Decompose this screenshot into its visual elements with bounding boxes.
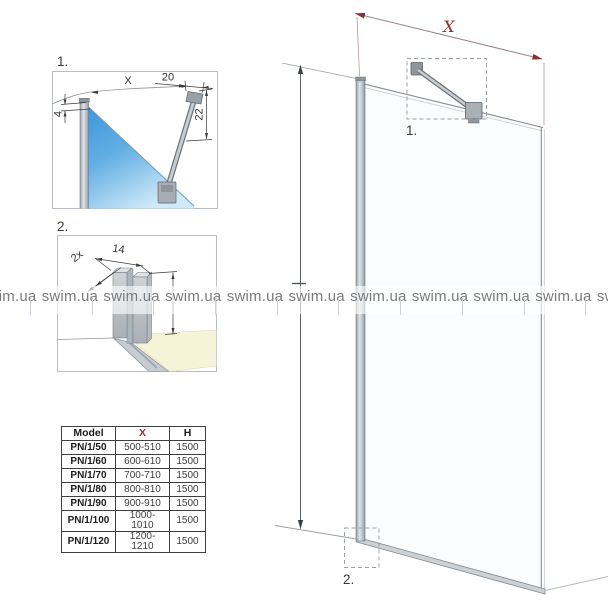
watermark-band: swim.ua swim.ua swim.ua swim.ua swim.ua … [0, 288, 608, 318]
wall-profile [80, 101, 89, 210]
glass-clamp [466, 103, 483, 120]
model-spec-table: Model X H PN/1/50 500-510 1500 PN/1/60 6… [61, 426, 206, 553]
floor-line-right [545, 577, 608, 591]
wall-bracket [186, 92, 203, 105]
detail-1-view: 1. X 20 [52, 54, 218, 210]
watermark-unit: swim.ua [0, 288, 42, 318]
model-cell: PN/1/90 [62, 497, 116, 511]
model-cell: PN/1/70 [62, 469, 116, 483]
header-x: X [116, 427, 170, 441]
watermark-text: swim.ua [103, 288, 159, 305]
h-cell: 1500 [170, 441, 206, 455]
detail-2-label: 2. [57, 219, 68, 234]
watermark-unit: swim.ua [165, 288, 227, 318]
watermark-unit: swim.ua [597, 288, 608, 318]
callout-2-label: 2. [343, 572, 354, 587]
watermark-unit: swim.ua [535, 288, 597, 318]
watermark-divider [338, 298, 339, 315]
callout-1-label: 1. [406, 123, 417, 138]
table-row: PN/1/90 900-910 1500 [62, 497, 206, 511]
watermark-text: swim.ua [165, 288, 221, 305]
watermark-unit: swim.ua [227, 288, 289, 318]
watermark-divider [277, 298, 278, 315]
h-cell: 1500 [170, 469, 206, 483]
watermark-unit: swim.ua [42, 288, 104, 318]
watermark-text: swim.ua [535, 288, 591, 305]
x-cell: 600-610 [116, 455, 170, 469]
h-cell: 1500 [170, 511, 206, 532]
table-row: PN/1/60 600-610 1500 [62, 455, 206, 469]
wall-profile-cap [356, 77, 366, 81]
wall-profile-cap [79, 98, 89, 102]
watermark-text: swim.ua [350, 288, 406, 305]
watermark-text: swim.ua [597, 288, 608, 305]
watermark-divider [585, 298, 586, 315]
x-cell: 800-810 [116, 483, 170, 497]
table-row: PN/1/120 1200-1210 1500 [62, 532, 206, 553]
table-header-row: Model X H [62, 427, 206, 441]
dim-4-label: 4 [53, 111, 65, 117]
table-row: PN/1/50 500-510 1500 [62, 441, 206, 455]
h-cell: 1500 [170, 483, 206, 497]
x-cell: 900-910 [116, 497, 170, 511]
model-cell: PN/1/80 [62, 483, 116, 497]
watermark-unit: swim.ua [350, 288, 412, 318]
table-row: PN/1/100 1000-1010 1500 [62, 511, 206, 532]
model-cell: PN/1/60 [62, 455, 116, 469]
watermark-unit: swim.ua [288, 288, 350, 318]
model-cell: PN/1/120 [62, 532, 116, 553]
h-cell: 1500 [170, 455, 206, 469]
header-model: Model [62, 427, 116, 441]
watermark-text: swim.ua [474, 288, 530, 305]
watermark-text: swim.ua [42, 288, 98, 305]
dim-x-label: X [124, 75, 132, 87]
watermark-unit: swim.ua [103, 288, 165, 318]
watermark-text: swim.ua [412, 288, 468, 305]
watermark-unit: swim.ua [412, 288, 474, 318]
model-cell: PN/1/50 [62, 441, 116, 455]
x-cell: 500-510 [116, 441, 170, 455]
x-cell: 700-710 [116, 469, 170, 483]
watermark-divider [92, 298, 93, 315]
detail-1-label: 1. [57, 54, 68, 69]
glass-panel [364, 84, 542, 591]
watermark-divider [462, 298, 463, 315]
watermark-unit: swim.ua [474, 288, 536, 318]
dim-22-label: 22 [194, 108, 206, 120]
dim-20-label: 20 [162, 72, 174, 84]
width-dim-label: X [441, 17, 455, 36]
header-h: H [170, 427, 206, 441]
x-cell: 1200-1210 [116, 532, 170, 553]
dim-14-label: 14 [111, 243, 125, 257]
h-cell: 1500 [170, 497, 206, 511]
table-row: PN/1/70 700-710 1500 [62, 469, 206, 483]
h-cell: 1500 [170, 532, 206, 553]
watermark-text: swim.ua [288, 288, 344, 305]
watermark-divider [524, 298, 525, 315]
glass-clamp-detail [161, 185, 173, 192]
watermark-text: swim.ua [227, 288, 283, 305]
x-cell: 1000-1010 [116, 511, 170, 532]
model-cell: PN/1/100 [62, 511, 116, 532]
table-row: PN/1/80 800-810 1500 [62, 483, 206, 497]
watermark-divider [153, 298, 154, 315]
watermark-divider [400, 298, 401, 315]
watermark-divider [30, 298, 31, 315]
watermark-divider [215, 298, 216, 315]
